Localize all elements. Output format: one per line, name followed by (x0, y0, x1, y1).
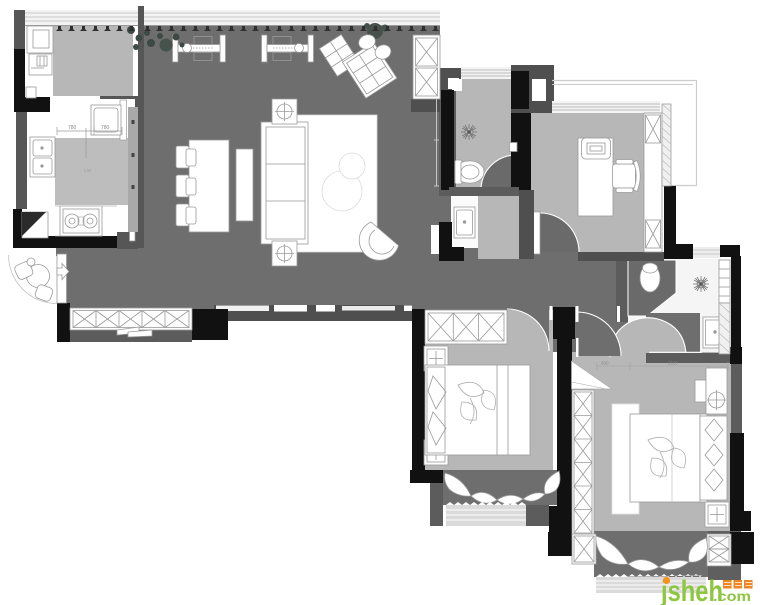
svg-text:600: 600 (601, 361, 609, 366)
svg-text:780: 780 (68, 125, 77, 131)
svg-text:.com: .com (713, 589, 751, 604)
svg-text:L02: L02 (84, 168, 92, 173)
svg-text:2100: 2100 (668, 361, 679, 366)
svg-text:780: 780 (101, 125, 110, 131)
